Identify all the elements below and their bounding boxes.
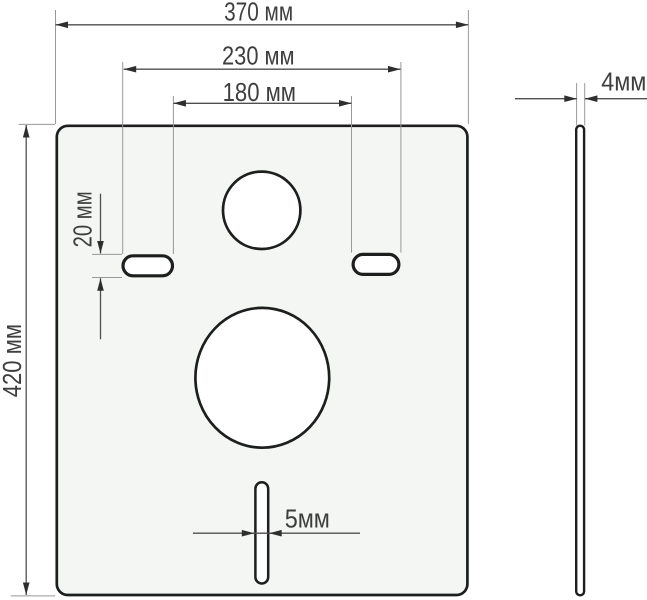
svg-text:5мм: 5мм <box>285 505 330 533</box>
svg-text:230 мм: 230 мм <box>222 42 295 71</box>
svg-text:420 мм: 420 мм <box>0 324 27 397</box>
svg-text:370 мм: 370 мм <box>224 0 293 26</box>
svg-text:20 мм: 20 мм <box>68 191 97 247</box>
svg-text:4мм: 4мм <box>601 68 646 96</box>
svg-text:180 мм: 180 мм <box>223 78 296 107</box>
